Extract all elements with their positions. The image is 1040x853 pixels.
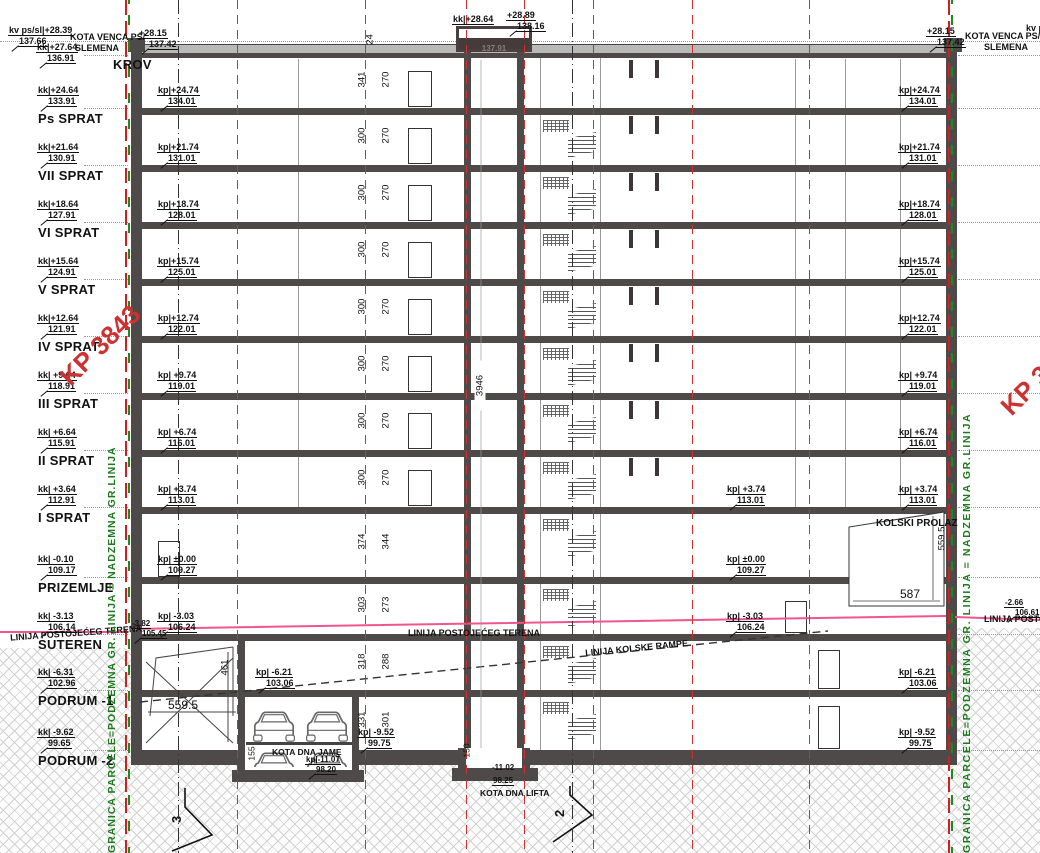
storey-dim: 300 bbox=[357, 287, 368, 327]
storey-dim: 270 bbox=[381, 287, 392, 327]
elevation-label-kp: kp|+21.74131.01 bbox=[898, 142, 941, 164]
storey-dim: 270 bbox=[381, 116, 392, 156]
jame-pit-dim: 155 bbox=[247, 739, 258, 769]
terrain-label-right: LINIJA POSTOJEĆEG TERENA bbox=[984, 614, 1040, 624]
elevation-label: +28.89138.16 bbox=[506, 10, 546, 32]
elevation-label-kp: kp| +3.74113.01 bbox=[157, 484, 197, 506]
slemena-label: SLEMENA bbox=[75, 43, 119, 53]
elevation-label-kk: kk|+12.64121.91 bbox=[37, 313, 79, 335]
elevation-label-kp: kp|+12.74122.01 bbox=[157, 313, 200, 335]
elevation-label-kk: kk| +3.64112.91 bbox=[37, 484, 77, 506]
floor-name: V SPRAT bbox=[38, 282, 95, 297]
elevation-label: kk|+27.64136.91 bbox=[36, 42, 78, 64]
elevation-label-kk: kk|+24.64133.91 bbox=[37, 85, 79, 107]
lift-pit-elevation: 98.25 bbox=[492, 776, 514, 786]
kolski-prolaz-label: KOLSKI PROLAZ bbox=[876, 518, 958, 529]
jame-elevation: kp|-11.0798.20 bbox=[305, 755, 341, 775]
storey-dim: 300 bbox=[357, 401, 368, 441]
elevation-label-kp: kp|+18.74128.01 bbox=[157, 199, 200, 221]
linework-overlay: 3 2 bbox=[0, 0, 1040, 853]
floor-name: VII SPRAT bbox=[38, 168, 103, 183]
kota-dna-lifta-label: KOTA DNA LIFTA bbox=[480, 788, 549, 798]
elevation-label-kk: kk| -6.31102.96 bbox=[37, 667, 77, 689]
elevation-label-kp: kp| ±0.00109.27 bbox=[157, 554, 197, 576]
parcel-boundary-line-green bbox=[951, 0, 953, 853]
section-drawing-canvas: 137.91 3 2 bbox=[0, 0, 1040, 853]
elevation-label-kp: kp| +3.74113.01 bbox=[898, 484, 938, 506]
floor-name: I SPRAT bbox=[38, 510, 90, 525]
elevation-label-kp: kp| -3.03106.24 bbox=[726, 611, 766, 633]
elevation-label-kp: kp| -6.21103.06 bbox=[255, 667, 295, 689]
axis-line-red bbox=[692, 0, 693, 853]
elevation-label-kp: kp|+15.74125.01 bbox=[898, 256, 941, 278]
storey-dim: 270 bbox=[381, 458, 392, 498]
parcel-boundary-line-green bbox=[128, 0, 130, 853]
elevation-label: kk|+28.64 bbox=[452, 14, 494, 25]
elevation-label-kp: kp| +9.74119.01 bbox=[157, 370, 197, 392]
elevation-label-kk: kk| +6.64115.91 bbox=[37, 427, 77, 449]
boundary-text-right: GRANICA PARCELE=PODZEMNA GR. LINIJA = NA… bbox=[961, 470, 973, 853]
ramp-height-dim: 461 bbox=[220, 653, 231, 683]
kota-venca-label: KOTA VENCA PS/ bbox=[70, 32, 145, 42]
axis-line bbox=[572, 0, 573, 853]
elevation-label-kp: kp|+21.74131.01 bbox=[157, 142, 200, 164]
elevation-label-kp: kp|+12.74122.01 bbox=[898, 313, 941, 335]
lift-pit-dim: 150 bbox=[462, 736, 473, 766]
storey-dim: 300 bbox=[357, 173, 368, 213]
elevation-label-kp: kp|+18.74128.01 bbox=[898, 199, 941, 221]
storey-dim: 270 bbox=[381, 60, 392, 100]
parcel-boundary-line bbox=[125, 0, 127, 853]
storey-dim: 300 bbox=[357, 344, 368, 384]
storey-dim: 344 bbox=[381, 522, 392, 562]
storey-dim: 374 bbox=[357, 522, 368, 562]
section-marker-3-label: 3 bbox=[169, 816, 184, 823]
elevation-label-kk: kk| -0.10109.17 bbox=[37, 554, 77, 576]
floor-name: VI SPRAT bbox=[38, 225, 99, 240]
storey-dim: 270 bbox=[381, 344, 392, 384]
elevation-label-kp: kp| ±0.00109.27 bbox=[726, 554, 766, 576]
ramp-length-dim: 559.5 bbox=[168, 698, 198, 712]
floor-name: III SPRAT bbox=[38, 396, 98, 411]
elevation-label-kp: kp|+24.74134.01 bbox=[898, 85, 941, 107]
storey-dim: 303 bbox=[357, 585, 368, 625]
elevation-label-kp: kp| -9.5299.75 bbox=[357, 727, 395, 749]
kv-right-label: kv ps bbox=[1026, 23, 1040, 33]
section-marker-2-label: 2 bbox=[552, 810, 567, 817]
storey-dim: 270 bbox=[381, 173, 392, 213]
storey-dim: 288 bbox=[381, 642, 392, 682]
floor-name: PRIZEMLJE bbox=[38, 580, 114, 595]
storey-dim: 341 bbox=[357, 60, 368, 100]
storey-dim: 300 bbox=[357, 458, 368, 498]
floor-name: PODRUM -2 bbox=[38, 753, 114, 768]
elevation-label-kp: kp| +6.74116.01 bbox=[157, 427, 197, 449]
elevation-label-kk: kk|+21.64130.91 bbox=[37, 142, 79, 164]
axis-line-red bbox=[237, 0, 238, 853]
boundary-text-left: GRANICA PARCELE=PODZEMNA GR. LINIJA = NA… bbox=[106, 497, 118, 853]
parcel-boundary-line bbox=[948, 0, 950, 853]
floor-name-krov: KROV bbox=[113, 57, 152, 72]
slemena-label-right: SLEMENA bbox=[984, 42, 1028, 52]
axis-line-red bbox=[593, 0, 594, 853]
floor-name: II SPRAT bbox=[38, 453, 94, 468]
elevation-label-kp: kp| +3.74113.01 bbox=[726, 484, 766, 506]
elevation-label-kp: kp| +9.74119.01 bbox=[898, 370, 938, 392]
kota-dna-jame-label: KOTA DNA JAME bbox=[272, 747, 342, 757]
elevation-label-kk: kk|+18.64127.91 bbox=[37, 199, 79, 221]
elevation-label-kk: kk|+15.64124.91 bbox=[37, 256, 79, 278]
terrain-label-mid: LINIJA POSTOJEĆEG TERENA bbox=[408, 628, 540, 638]
elevation-label-kp: kp| -9.5299.75 bbox=[898, 727, 936, 749]
storey-dim: 270 bbox=[381, 230, 392, 270]
parapet-dim: 24 bbox=[365, 28, 376, 52]
car-icon bbox=[303, 708, 351, 743]
storey-dim: 300 bbox=[357, 116, 368, 156]
storey-dim: 318 bbox=[357, 642, 368, 682]
storey-dim: 273 bbox=[381, 585, 392, 625]
elevation-label-kk: kk| -9.6299.65 bbox=[37, 727, 75, 749]
elevation-label: +28.15137.42 bbox=[926, 26, 966, 48]
shaft-total-dim: 3946 bbox=[475, 361, 486, 411]
prolaz-width-dim: 587 bbox=[900, 587, 920, 601]
elevation-label-kp: kp| +6.74116.01 bbox=[898, 427, 938, 449]
elevation-label-kp: kp|+24.74134.01 bbox=[157, 85, 200, 107]
lift-pit-value: -11.02 bbox=[492, 763, 514, 772]
axis-line-red bbox=[809, 0, 810, 853]
storey-dim: 270 bbox=[381, 401, 392, 441]
elevation-label-kp: kp|+15.74125.01 bbox=[157, 256, 200, 278]
elevation-label-kp: kp| -6.21103.06 bbox=[898, 667, 938, 689]
storey-dim: 300 bbox=[357, 230, 368, 270]
floor-name: Ps SPRAT bbox=[38, 111, 103, 126]
floor-name: PODRUM -1 bbox=[38, 693, 114, 708]
axis-line-red bbox=[466, 0, 467, 853]
axis-line-red bbox=[524, 0, 525, 853]
ramp-dashed-line bbox=[140, 631, 828, 702]
